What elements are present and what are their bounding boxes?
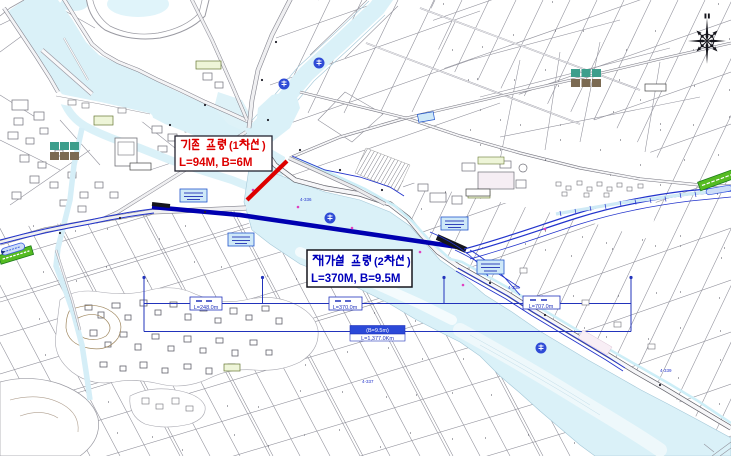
svg-text:L=94M, B=6M: L=94M, B=6M [179, 157, 253, 169]
svg-text:L=1,377.0Km: L=1,377.0Km [361, 336, 394, 342]
svg-text:4-338: 4-338 [508, 285, 520, 290]
svg-text:L=370.0m: L=370.0m [333, 305, 358, 311]
svg-text:): ) [407, 256, 411, 268]
svg-text:4-336: 4-336 [300, 197, 312, 202]
svg-text:L=248.0m: L=248.0m [194, 305, 219, 311]
svg-text:(B=9.5m): (B=9.5m) [366, 328, 389, 334]
svg-text:(2: (2 [374, 256, 384, 268]
svg-text:): ) [262, 140, 266, 152]
svg-text:L=370M, B=9.5M: L=370M, B=9.5M [311, 273, 400, 285]
svg-text:4-337: 4-337 [362, 379, 374, 384]
svg-text:(1: (1 [229, 140, 239, 152]
svg-text:L=707.0m: L=707.0m [529, 304, 554, 310]
svg-text:4-339: 4-339 [660, 368, 672, 373]
